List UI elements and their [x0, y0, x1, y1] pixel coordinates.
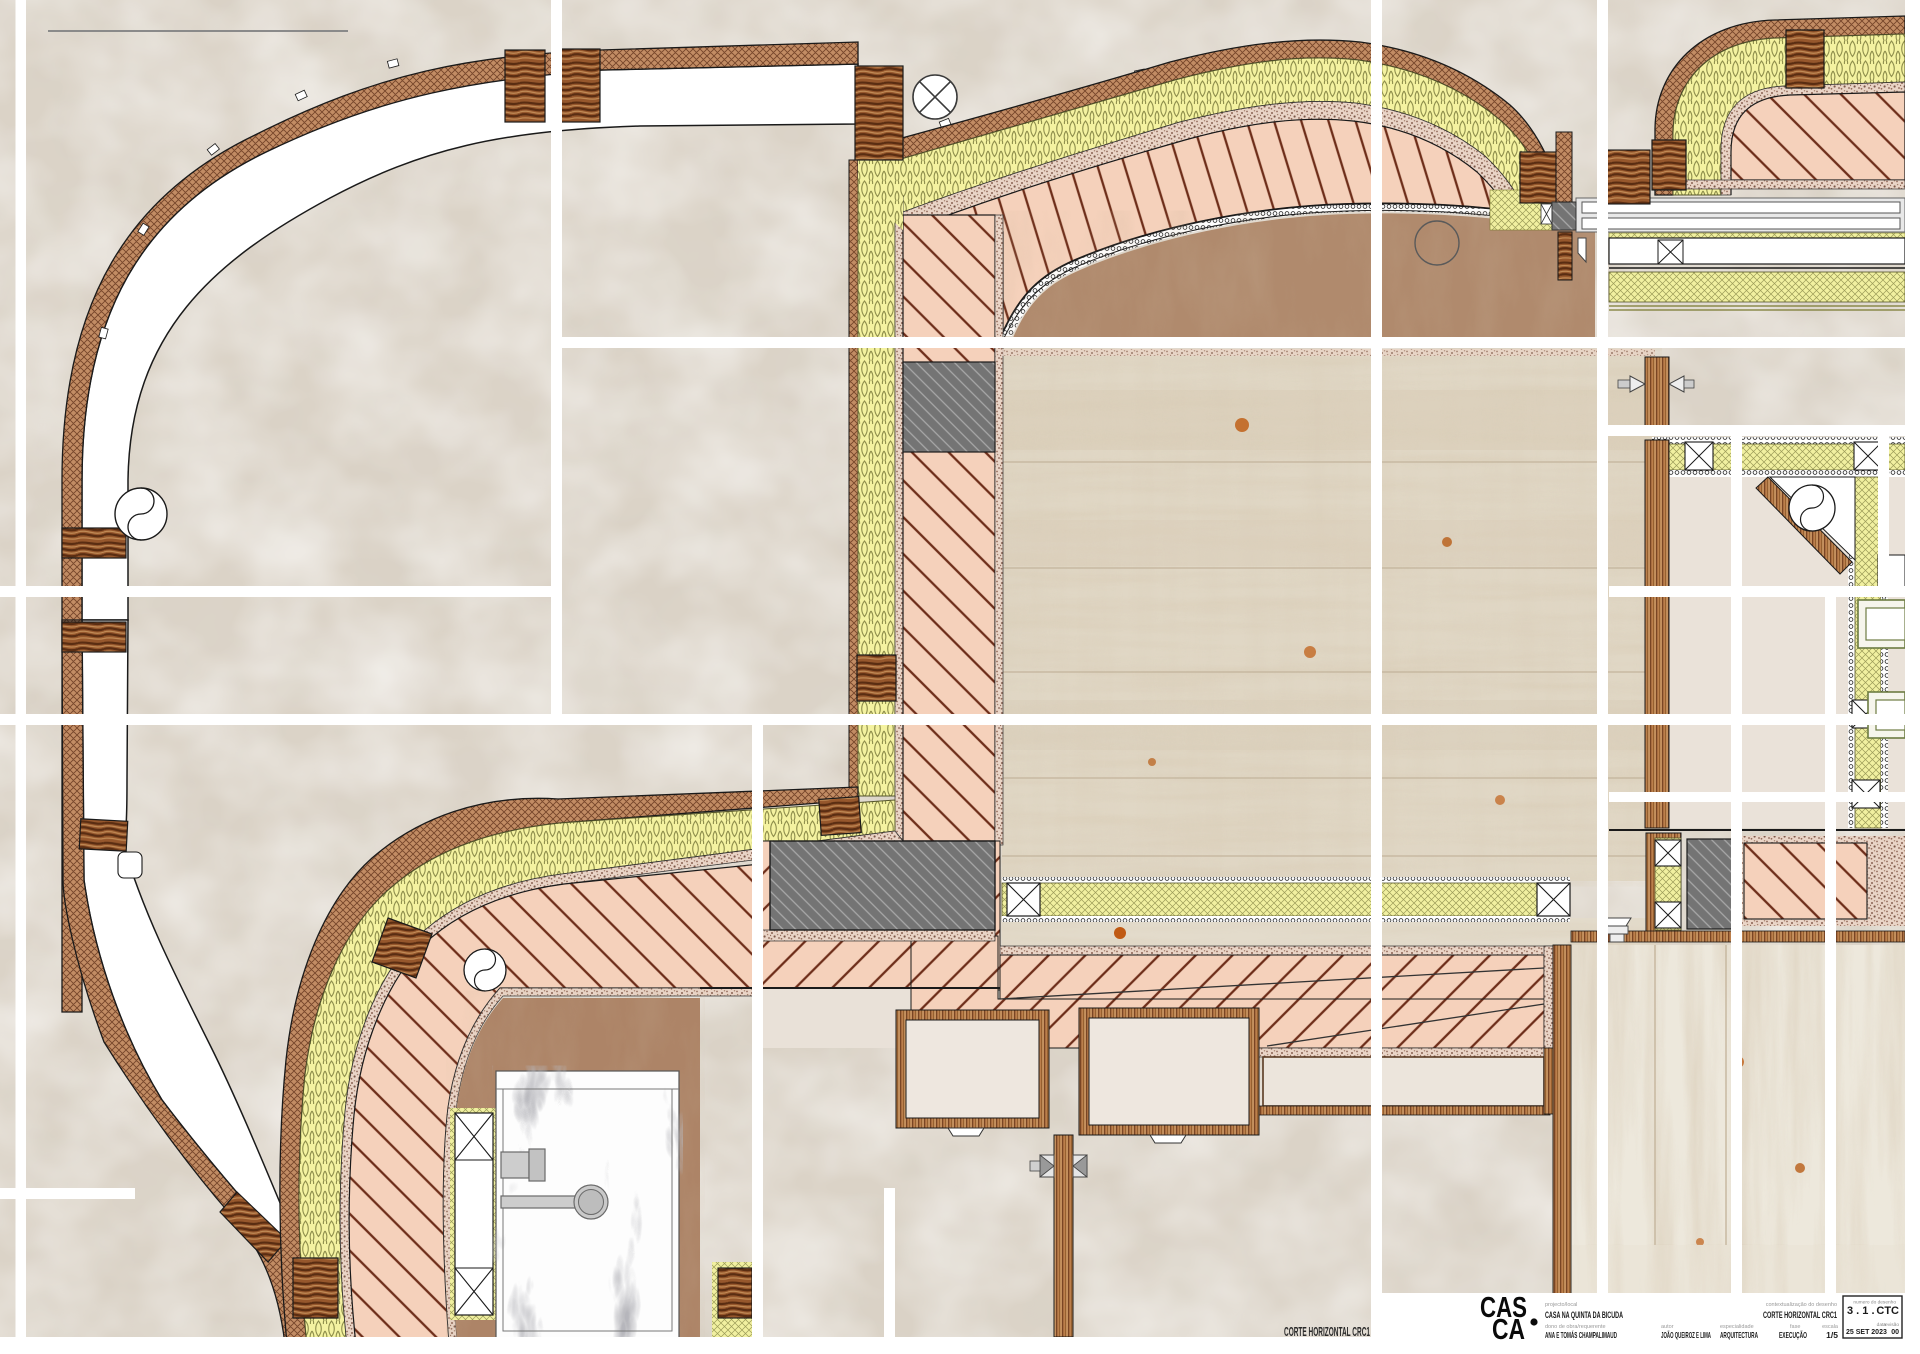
svg-text:projecto/local: projecto/local [1545, 1302, 1577, 1308]
svg-text:CORTE HORIZONTAL CRC1: CORTE HORIZONTAL CRC1 [1763, 1310, 1837, 1320]
svg-text:CA: CA [1492, 1314, 1525, 1346]
svg-text:revisão: revisão [1884, 1322, 1900, 1328]
svg-text:ANA E TOMÁS CHAMPALIMAUD: ANA E TOMÁS CHAMPALIMAUD [1545, 1330, 1617, 1340]
svg-text:25 SET 2023: 25 SET 2023 [1846, 1329, 1887, 1336]
svg-text:CORTE HORIZONTAL CRC1: CORTE HORIZONTAL CRC1 [1284, 1324, 1370, 1339]
svg-text:CTC: CTC [1876, 1305, 1899, 1317]
svg-text:JOÃO QUEIROZ E LIMA: JOÃO QUEIROZ E LIMA [1661, 1330, 1711, 1340]
svg-text:3 . 1 .: 3 . 1 . [1847, 1305, 1875, 1317]
svg-text:1/5: 1/5 [1826, 1330, 1838, 1340]
svg-text:EXECUÇÃO: EXECUÇÃO [1779, 1330, 1807, 1340]
svg-text:ARQUITECTURA: ARQUITECTURA [1720, 1330, 1758, 1340]
svg-text:contextualização do desenho: contextualização do desenho [1766, 1302, 1837, 1308]
svg-text:00: 00 [1891, 1329, 1899, 1336]
svg-text:CASA NA QUINTA DA BICUDA: CASA NA QUINTA DA BICUDA [1545, 1310, 1623, 1320]
